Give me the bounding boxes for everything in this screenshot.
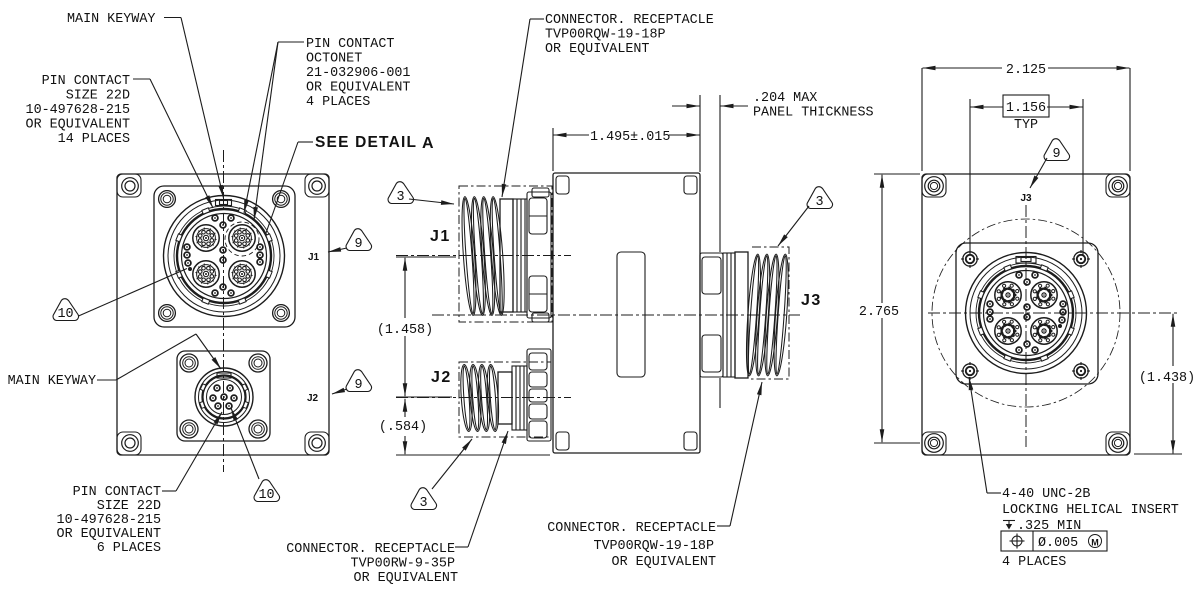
svg-text:CONNECTOR. RECEPTACLE: CONNECTOR. RECEPTACLE: [545, 13, 714, 28]
svg-text:10: 10: [57, 307, 73, 322]
svg-text:MAIN KEYWAY: MAIN KEYWAY: [67, 12, 155, 27]
svg-text:TVP00RQW-19-18P: TVP00RQW-19-18P: [545, 28, 666, 43]
svg-text:OR EQUIVALENT: OR EQUIVALENT: [612, 555, 716, 570]
svg-text:CONNECTOR. RECEPTACLE: CONNECTOR. RECEPTACLE: [286, 542, 455, 557]
svg-text:J2: J2: [431, 369, 452, 386]
svg-text:MAIN KEYWAY: MAIN KEYWAY: [8, 374, 96, 389]
svg-text:OR EQUIVALENT: OR EQUIVALENT: [57, 527, 161, 542]
svg-text:9: 9: [354, 237, 362, 252]
svg-text:(.584): (.584): [379, 420, 427, 435]
svg-text:Ø.005: Ø.005: [1038, 536, 1078, 551]
svg-text:J3: J3: [801, 292, 822, 309]
svg-text:3: 3: [419, 496, 427, 511]
svg-text:3: 3: [396, 190, 404, 205]
svg-text:1.156: 1.156: [1006, 101, 1046, 116]
svg-text:A: A: [422, 135, 435, 152]
svg-text:J1: J1: [308, 252, 320, 263]
svg-text:3: 3: [815, 195, 823, 210]
svg-text:SIZE 22D: SIZE 22D: [66, 89, 130, 104]
svg-text:(1.458): (1.458): [377, 323, 433, 338]
svg-text:OR EQUIVALENT: OR EQUIVALENT: [306, 81, 410, 96]
svg-text:9: 9: [1052, 147, 1060, 162]
svg-text:LOCKING HELICAL INSERT: LOCKING HELICAL INSERT: [1002, 503, 1179, 518]
svg-text:4 PLACES: 4 PLACES: [1002, 555, 1066, 570]
svg-text:TVP00RW-9-35P: TVP00RW-9-35P: [351, 557, 455, 572]
svg-text:PANEL THICKNESS: PANEL THICKNESS: [753, 106, 874, 121]
svg-text:2.765: 2.765: [859, 305, 899, 320]
svg-text:4 PLACES: 4 PLACES: [306, 95, 370, 110]
svg-text:4-40 UNC-2B: 4-40 UNC-2B: [1002, 487, 1090, 502]
svg-text:6 PLACES: 6 PLACES: [97, 541, 161, 556]
svg-text:OR EQUIVALENT: OR EQUIVALENT: [26, 118, 130, 133]
svg-text:OR EQUIVALENT: OR EQUIVALENT: [354, 571, 458, 586]
svg-text:J1: J1: [430, 228, 451, 245]
svg-text:SEE DETAIL: SEE DETAIL: [315, 134, 417, 151]
svg-text:PIN CONTACT: PIN CONTACT: [306, 37, 394, 52]
svg-text:OR EQUIVALENT: OR EQUIVALENT: [545, 42, 649, 57]
svg-text:10-497628-215: 10-497628-215: [57, 513, 161, 528]
svg-text:(1.438): (1.438): [1139, 371, 1195, 386]
svg-text:M: M: [1091, 538, 1099, 548]
svg-text:PIN CONTACT: PIN CONTACT: [73, 485, 161, 500]
svg-text:14 PLACES: 14 PLACES: [58, 132, 130, 147]
svg-text:J3: J3: [1020, 193, 1032, 204]
svg-text:SIZE 22D: SIZE 22D: [97, 499, 161, 514]
svg-text:TYP: TYP: [1014, 118, 1038, 133]
svg-text:OCTONET: OCTONET: [306, 52, 362, 67]
svg-text:2.125: 2.125: [1006, 63, 1046, 78]
svg-text:21-032906-001: 21-032906-001: [306, 66, 410, 81]
svg-text:9: 9: [354, 378, 362, 393]
svg-text:PIN CONTACT: PIN CONTACT: [42, 74, 130, 89]
svg-text:10-497628-215: 10-497628-215: [26, 103, 130, 118]
svg-text:1.495±.015: 1.495±.015: [590, 130, 670, 145]
svg-text:TVP00RQW-19-18P: TVP00RQW-19-18P: [593, 539, 714, 554]
svg-text:J2: J2: [307, 393, 319, 404]
svg-text:CONNECTOR. RECEPTACLE: CONNECTOR. RECEPTACLE: [547, 521, 716, 536]
svg-text:.204 MAX: .204 MAX: [753, 91, 817, 106]
svg-text:.325 MIN: .325 MIN: [1017, 519, 1081, 534]
svg-text:10: 10: [258, 488, 274, 503]
